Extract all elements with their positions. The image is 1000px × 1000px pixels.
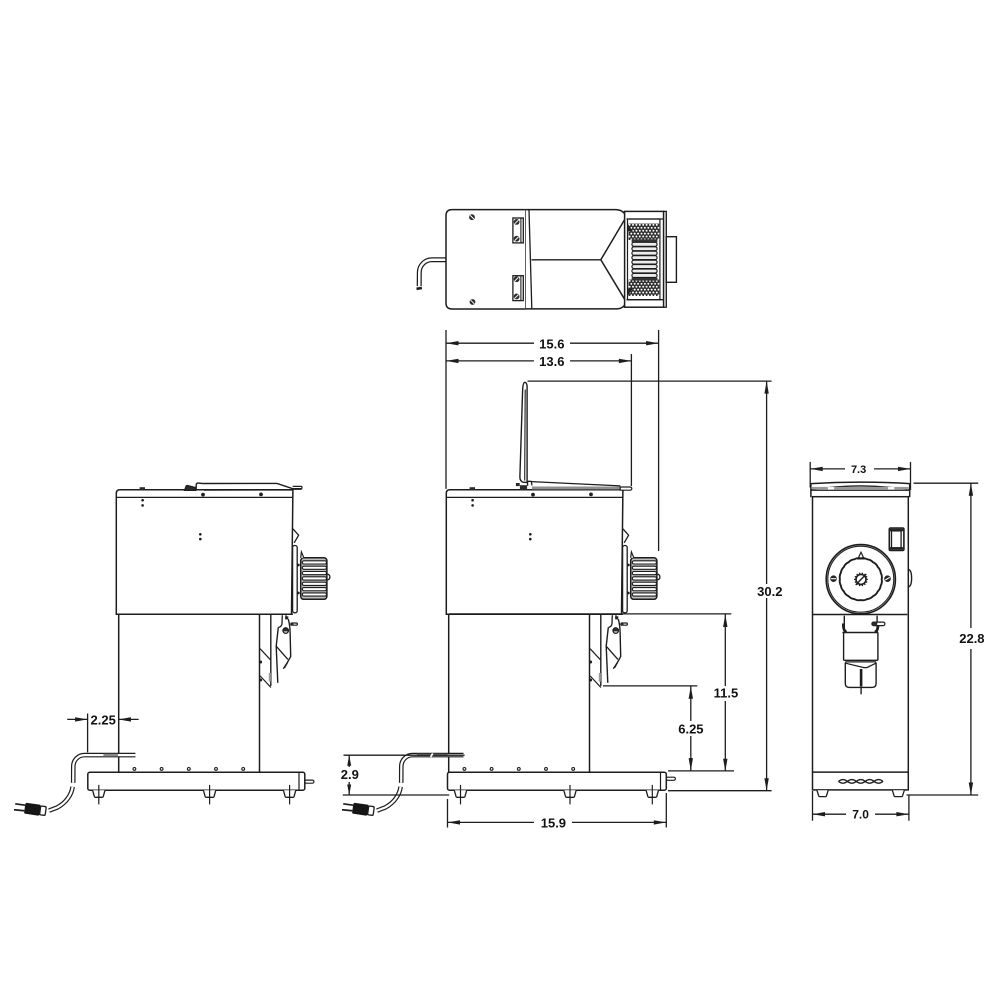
svg-text:15.6: 15.6	[539, 336, 564, 351]
svg-text:13.6: 13.6	[539, 354, 564, 369]
svg-text:30.2: 30.2	[757, 584, 782, 599]
svg-text:2.25: 2.25	[91, 712, 116, 727]
svg-text:22.8: 22.8	[959, 631, 984, 646]
svg-text:11.5: 11.5	[714, 686, 739, 701]
svg-text:6.25: 6.25	[678, 721, 703, 736]
svg-text:2.9: 2.9	[341, 767, 359, 782]
svg-text:7.0: 7.0	[852, 808, 869, 822]
svg-text:7.3: 7.3	[851, 464, 866, 476]
svg-text:15.9: 15.9	[541, 815, 566, 830]
